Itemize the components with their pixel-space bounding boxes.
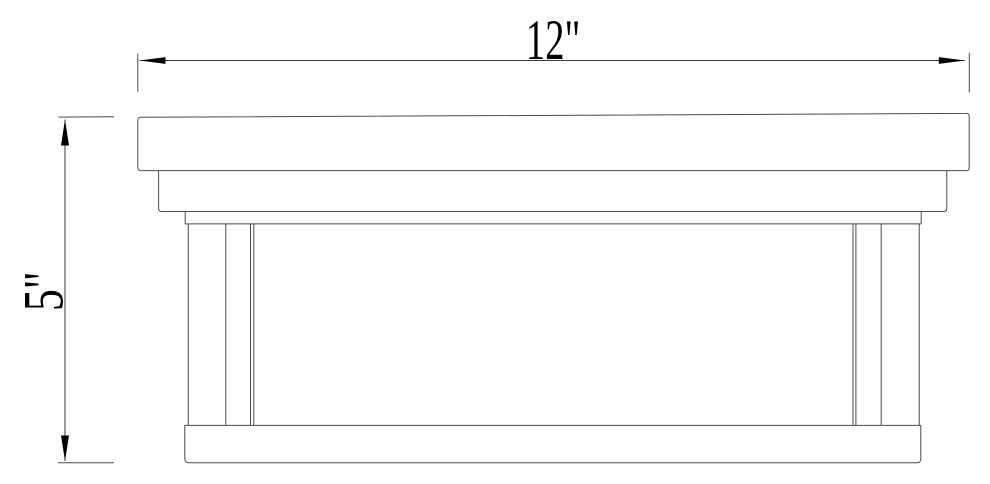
svg-text:12": 12" — [526, 9, 581, 72]
